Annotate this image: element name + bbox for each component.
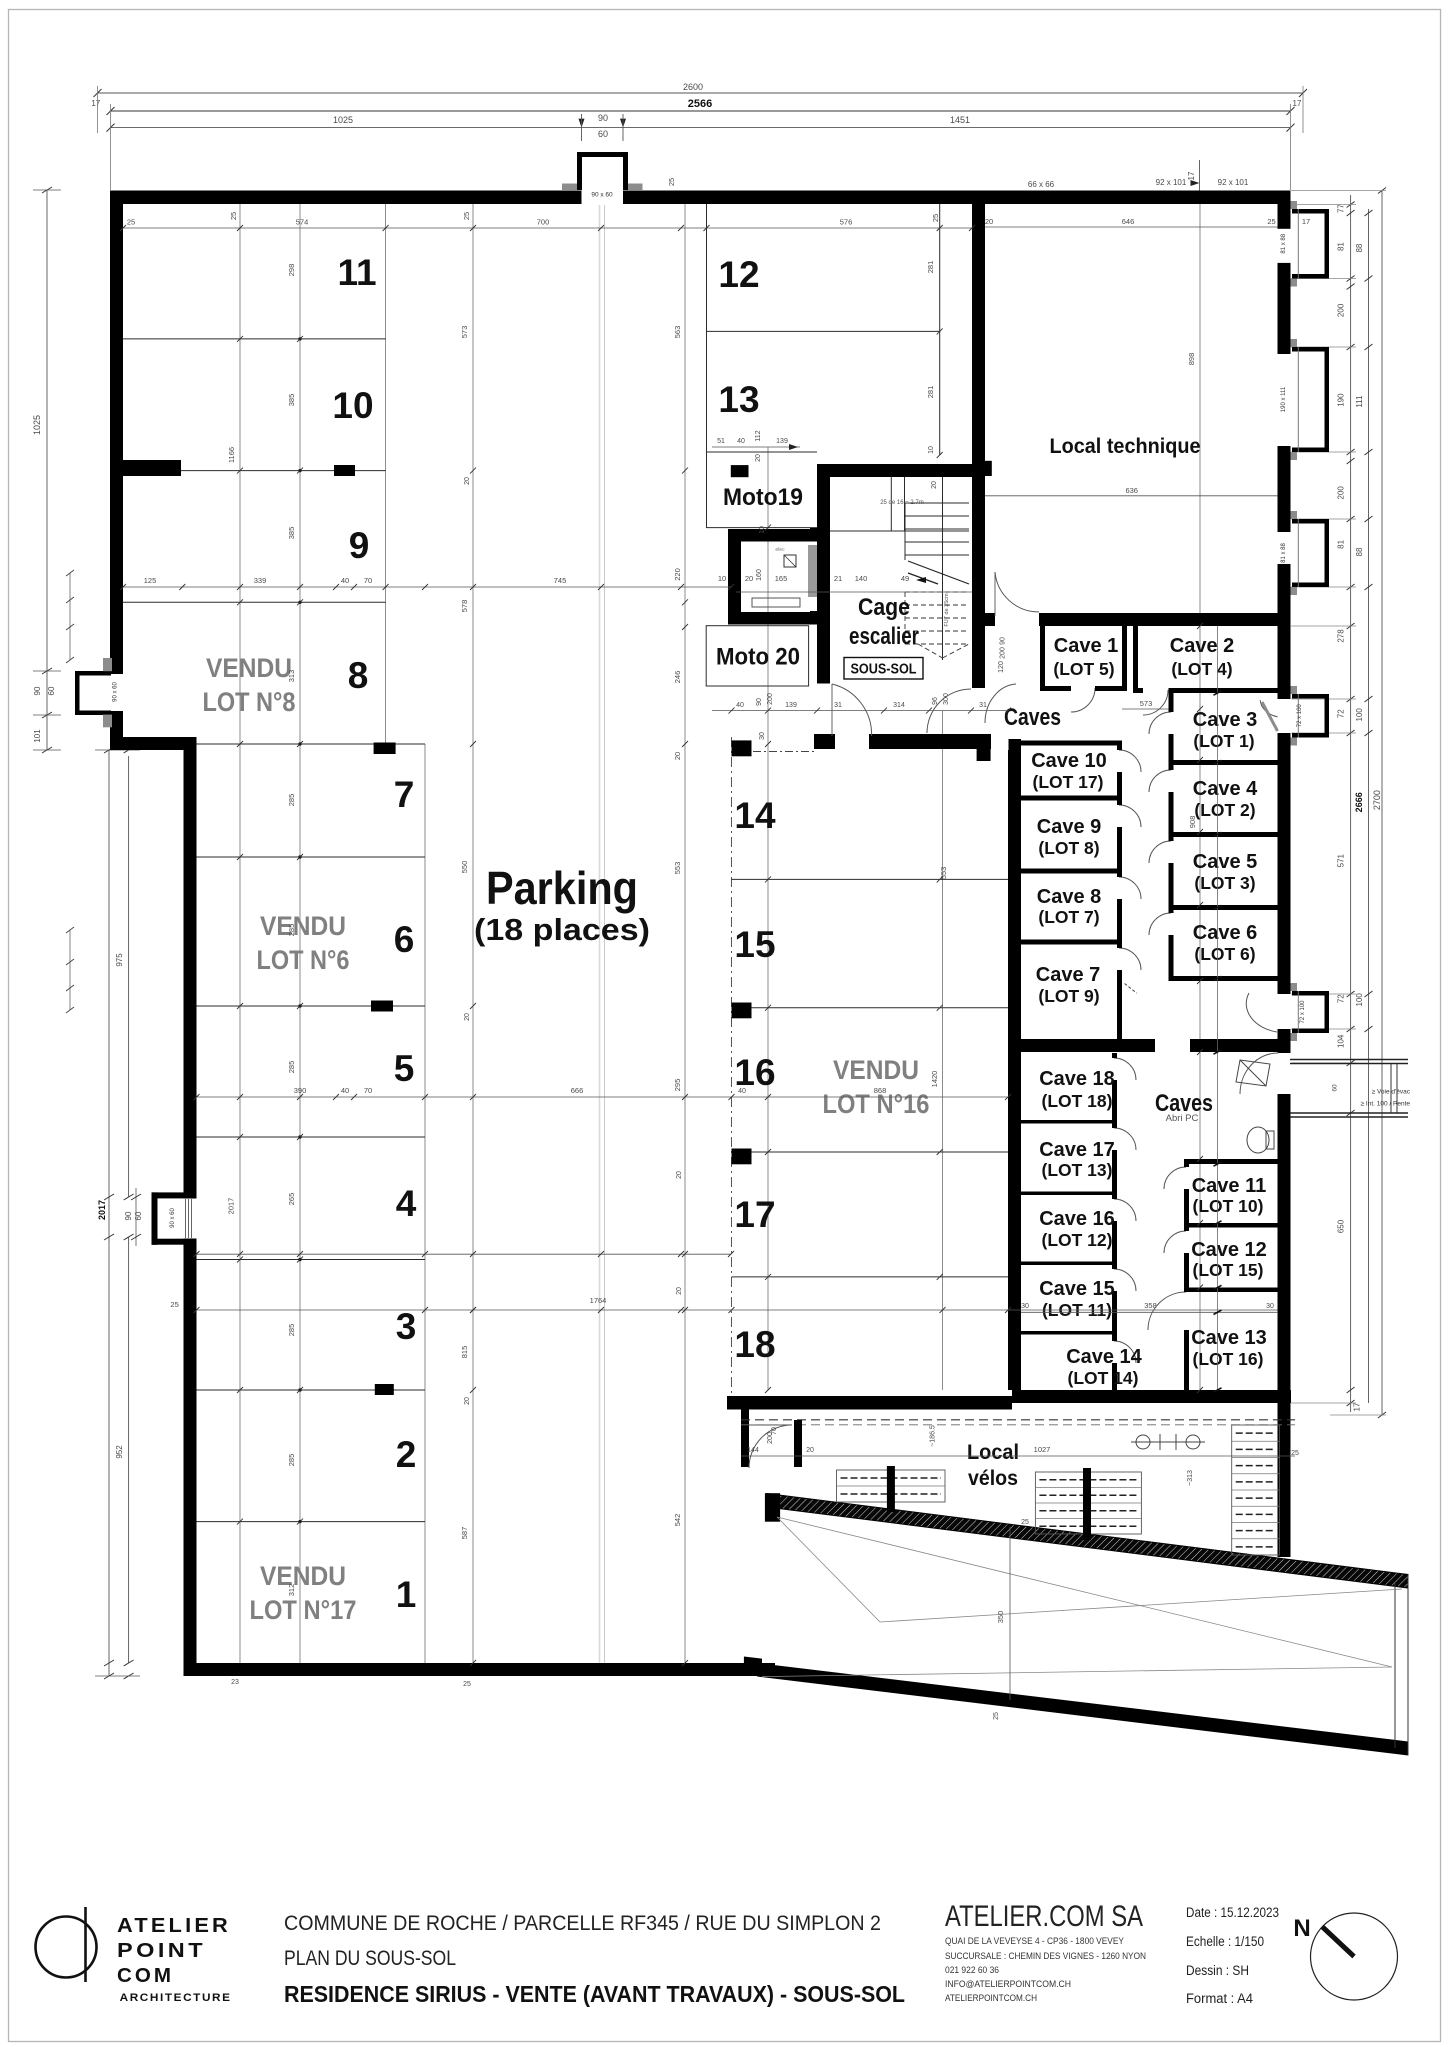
svg-text:66 x 66: 66 x 66 xyxy=(1028,180,1055,189)
svg-text:2017: 2017 xyxy=(227,1198,236,1215)
svg-text:17: 17 xyxy=(734,1194,775,1235)
svg-text:2700: 2700 xyxy=(1372,790,1382,810)
svg-text:88: 88 xyxy=(1355,243,1364,252)
svg-text:ARCHITECTURE: ARCHITECTURE xyxy=(120,1992,232,2004)
svg-text:Local technique: Local technique xyxy=(1050,435,1201,458)
svg-text:385: 385 xyxy=(287,394,296,407)
svg-text:77: 77 xyxy=(1337,204,1346,213)
svg-text:60: 60 xyxy=(47,686,56,695)
svg-text:14: 14 xyxy=(734,795,776,836)
svg-text:100: 100 xyxy=(1355,993,1364,1007)
svg-text:20: 20 xyxy=(464,1013,471,1021)
svg-text:(LOT 4): (LOT 4) xyxy=(1171,659,1232,679)
svg-text:(LOT 3): (LOT 3) xyxy=(1194,873,1255,893)
svg-text:574: 574 xyxy=(296,218,309,227)
svg-text:190 x 111: 190 x 111 xyxy=(1281,386,1287,412)
svg-text:2017: 2017 xyxy=(97,1200,107,1220)
svg-text:ATELIER: ATELIER xyxy=(117,1914,231,1937)
svg-text:339: 339 xyxy=(254,576,267,585)
svg-text:20: 20 xyxy=(464,1397,471,1405)
svg-text:25: 25 xyxy=(1291,1450,1299,1457)
svg-text:elec: elec xyxy=(775,547,785,553)
svg-text:RESIDENCE SIRIUS - VENTE (AVAN: RESIDENCE SIRIUS - VENTE (AVANT TRAVAUX)… xyxy=(284,1981,905,2007)
svg-text:700: 700 xyxy=(537,218,550,227)
svg-text:60: 60 xyxy=(134,1211,143,1220)
svg-text:Cage: Cage xyxy=(858,594,910,621)
svg-text:160: 160 xyxy=(756,569,763,581)
svg-text:(LOT 12): (LOT 12) xyxy=(1042,1230,1113,1250)
svg-text:40: 40 xyxy=(737,438,745,445)
svg-text:Date : 15.12.2023: Date : 15.12.2023 xyxy=(1186,1905,1279,1920)
svg-text:SOUS-SOL: SOUS-SOL xyxy=(851,662,917,678)
svg-text:51: 51 xyxy=(717,438,725,445)
svg-text:11: 11 xyxy=(337,252,376,293)
svg-text:2666: 2666 xyxy=(1354,792,1364,812)
svg-text:815: 815 xyxy=(460,1346,469,1359)
svg-text:40: 40 xyxy=(341,576,349,585)
svg-text:≥ Voie d'évac: ≥ Voie d'évac xyxy=(1372,1089,1411,1096)
svg-text:200: 200 xyxy=(1337,486,1346,500)
svg-text:Cave 7: Cave 7 xyxy=(1036,964,1101,986)
svg-text:Dessin : SH: Dessin : SH xyxy=(1186,1963,1249,1978)
svg-text:1764: 1764 xyxy=(590,1296,607,1305)
svg-text:90: 90 xyxy=(124,1211,133,1220)
svg-text:Cave 13: Cave 13 xyxy=(1191,1327,1267,1349)
svg-text:LOT N°6: LOT N°6 xyxy=(257,945,350,975)
svg-text:25: 25 xyxy=(229,212,238,220)
svg-text:542: 542 xyxy=(673,1514,682,1527)
svg-text:25: 25 xyxy=(1267,217,1275,226)
svg-text:SUCCURSALE : CHEMIN DES VIGNES: SUCCURSALE : CHEMIN DES VIGNES - 1260 NY… xyxy=(945,1951,1146,1962)
svg-text:N: N xyxy=(1293,1915,1310,1942)
svg-text:550: 550 xyxy=(460,861,469,874)
svg-text:Cave 15: Cave 15 xyxy=(1039,1278,1115,1300)
svg-text:70: 70 xyxy=(771,1427,778,1435)
svg-text:Cave 8: Cave 8 xyxy=(1037,886,1102,908)
svg-text:Cave 17: Cave 17 xyxy=(1039,1139,1115,1161)
svg-text:20: 20 xyxy=(931,481,938,489)
svg-text:81 x 88: 81 x 88 xyxy=(1281,233,1287,253)
svg-text:1027: 1027 xyxy=(1034,1445,1051,1454)
svg-text:312: 312 xyxy=(287,1584,296,1597)
svg-text:553: 553 xyxy=(673,862,682,875)
svg-text:(18 places): (18 places) xyxy=(474,912,650,947)
svg-text:908: 908 xyxy=(1188,816,1197,829)
svg-text:8: 8 xyxy=(348,655,369,696)
svg-text:60: 60 xyxy=(1332,1084,1339,1092)
svg-text:(LOT 18): (LOT 18) xyxy=(1042,1091,1113,1111)
svg-text:72 x 100: 72 x 100 xyxy=(1300,1000,1306,1024)
svg-text:12: 12 xyxy=(718,254,759,295)
svg-text:25: 25 xyxy=(170,1300,178,1309)
svg-text:QUAI DE LA VEVEYSE 4 - CP36 -: QUAI DE LA VEVEYSE 4 - CP36 - 1800 VEVEY xyxy=(945,1936,1125,1947)
svg-text:15: 15 xyxy=(734,924,775,965)
svg-text:2566: 2566 xyxy=(688,98,712,110)
svg-text:ATELIERPOINTCOM.CH: ATELIERPOINTCOM.CH xyxy=(945,1993,1037,2004)
svg-text:25: 25 xyxy=(667,178,676,186)
svg-text:(LOT 10): (LOT 10) xyxy=(1193,1196,1264,1216)
svg-text:92 x 101: 92 x 101 xyxy=(1156,178,1187,187)
svg-text:576: 576 xyxy=(840,218,853,227)
svg-text:(LOT 1): (LOT 1) xyxy=(1193,731,1254,751)
svg-text:10: 10 xyxy=(928,446,935,454)
svg-text:(LOT 5): (LOT 5) xyxy=(1053,659,1114,679)
svg-text:650: 650 xyxy=(1337,1219,1346,1233)
svg-text:70: 70 xyxy=(364,576,372,585)
svg-text:9: 9 xyxy=(349,525,370,566)
svg-text:Moto 20: Moto 20 xyxy=(716,644,800,671)
svg-text:Cave 4: Cave 4 xyxy=(1193,778,1258,800)
svg-text:390: 390 xyxy=(294,1086,307,1095)
svg-text:10: 10 xyxy=(332,385,373,426)
svg-text:587: 587 xyxy=(460,1527,469,1540)
svg-text:Format : A4: Format : A4 xyxy=(1186,1991,1253,2006)
svg-text:VENDU: VENDU xyxy=(833,1055,919,1085)
svg-text:INFO@ATELIERPOINTCOM.CH: INFO@ATELIERPOINTCOM.CH xyxy=(945,1979,1071,1990)
svg-text:6: 6 xyxy=(394,919,415,960)
svg-text:20: 20 xyxy=(806,1447,814,1454)
svg-text:220: 220 xyxy=(673,568,682,581)
svg-text:72: 72 xyxy=(1337,994,1346,1003)
svg-text:25: 25 xyxy=(463,1681,471,1688)
svg-text:Echelle : 1/150: Echelle : 1/150 xyxy=(1186,1934,1264,1949)
svg-text:20: 20 xyxy=(676,1171,683,1179)
svg-text:139: 139 xyxy=(785,702,797,709)
svg-text:40: 40 xyxy=(341,1086,349,1095)
svg-text:(LOT 15): (LOT 15) xyxy=(1193,1260,1264,1280)
svg-text:190: 190 xyxy=(1337,393,1346,407)
svg-text:90: 90 xyxy=(598,113,608,123)
svg-text:72: 72 xyxy=(1337,709,1346,718)
svg-text:Cave 14: Cave 14 xyxy=(1066,1346,1142,1368)
svg-text:30: 30 xyxy=(759,732,766,740)
svg-text:200: 200 xyxy=(1337,303,1346,317)
svg-text:745: 745 xyxy=(554,576,567,585)
svg-text:17: 17 xyxy=(1187,171,1196,180)
svg-text:101: 101 xyxy=(33,729,42,743)
svg-text:88: 88 xyxy=(1355,547,1364,556)
svg-text:13: 13 xyxy=(718,379,759,420)
svg-text:72 x 100: 72 x 100 xyxy=(1297,704,1303,728)
svg-text:Cave 5: Cave 5 xyxy=(1193,851,1258,873)
svg-text:VENDU: VENDU xyxy=(206,653,292,683)
svg-text:VENDU: VENDU xyxy=(260,1561,346,1591)
svg-text:Cave 18: Cave 18 xyxy=(1039,1068,1115,1090)
svg-text:Abri PC: Abri PC xyxy=(1166,1113,1199,1124)
svg-text:96: 96 xyxy=(932,697,939,705)
svg-text:17: 17 xyxy=(1293,99,1302,108)
svg-text:20: 20 xyxy=(755,454,762,462)
svg-text:573: 573 xyxy=(460,326,469,339)
svg-text:285: 285 xyxy=(287,1324,296,1337)
svg-text:17: 17 xyxy=(1302,217,1310,226)
svg-text:escalier: escalier xyxy=(849,623,919,650)
svg-text:868: 868 xyxy=(874,1086,887,1095)
svg-text:25: 25 xyxy=(127,218,135,227)
svg-text:(LOT 13): (LOT 13) xyxy=(1042,1160,1113,1180)
svg-text:25: 25 xyxy=(1021,1519,1029,1526)
svg-text:~186.5: ~186.5 xyxy=(930,1425,937,1447)
svg-text:Cave 6: Cave 6 xyxy=(1193,922,1258,944)
svg-text:10: 10 xyxy=(718,574,726,583)
svg-text:Cave 9: Cave 9 xyxy=(1037,816,1102,838)
svg-text:(LOT 9): (LOT 9) xyxy=(1038,986,1099,1006)
svg-text:Cave 1: Cave 1 xyxy=(1054,635,1119,657)
svg-text:ATELIER.COM SA: ATELIER.COM SA xyxy=(945,1900,1143,1933)
svg-text:385: 385 xyxy=(287,527,296,540)
svg-text:COMMUNE DE ROCHE / PARCELLE RF: COMMUNE DE ROCHE / PARCELLE RF345 / RUE … xyxy=(284,1911,881,1935)
svg-text:(LOT 16): (LOT 16) xyxy=(1193,1349,1264,1369)
svg-text:200: 200 xyxy=(767,693,774,705)
svg-text:5: 5 xyxy=(394,1048,415,1089)
svg-text:265: 265 xyxy=(287,1193,296,1206)
svg-text:Cave 10: Cave 10 xyxy=(1031,750,1107,772)
svg-text:100: 100 xyxy=(1355,708,1364,722)
svg-text:139: 139 xyxy=(776,438,788,445)
svg-text:VENDU: VENDU xyxy=(260,911,346,941)
svg-text:358: 358 xyxy=(1144,1301,1157,1310)
svg-text:666: 666 xyxy=(571,1086,584,1095)
svg-text:1025: 1025 xyxy=(333,115,353,125)
svg-text:~313: ~313 xyxy=(1187,1470,1194,1486)
svg-text:Cave 16: Cave 16 xyxy=(1039,1208,1115,1230)
svg-text:200: 200 xyxy=(1000,647,1007,659)
svg-text:(LOT 14): (LOT 14) xyxy=(1068,1368,1139,1388)
svg-text:281: 281 xyxy=(926,261,935,274)
svg-text:021 922 60 36: 021 922 60 36 xyxy=(945,1965,999,1976)
svg-text:2600: 2600 xyxy=(683,82,703,92)
svg-text:20: 20 xyxy=(985,217,993,226)
svg-text:25 de 16 = 2.7m: 25 de 16 = 2.7m xyxy=(880,500,924,506)
svg-text:20: 20 xyxy=(676,1287,683,1295)
svg-text:1420: 1420 xyxy=(930,1071,939,1088)
svg-text:Parking: Parking xyxy=(486,862,638,914)
svg-text:285: 285 xyxy=(287,794,296,807)
svg-text:140: 140 xyxy=(855,574,868,583)
svg-text:2: 2 xyxy=(396,1434,417,1475)
svg-text:Cave 12: Cave 12 xyxy=(1191,1239,1267,1261)
svg-text:278: 278 xyxy=(1337,629,1346,643)
svg-text:20: 20 xyxy=(745,574,753,583)
svg-text:(LOT 8): (LOT 8) xyxy=(1038,838,1099,858)
svg-text:Cave 11: Cave 11 xyxy=(1192,1175,1267,1197)
svg-text:281: 281 xyxy=(926,386,935,399)
svg-text:81 x 88: 81 x 88 xyxy=(1281,542,1287,562)
svg-text:21: 21 xyxy=(834,574,842,583)
svg-text:18: 18 xyxy=(734,1324,775,1365)
svg-text:25: 25 xyxy=(931,214,940,222)
svg-text:10: 10 xyxy=(759,526,766,534)
svg-text:Cave 3: Cave 3 xyxy=(1193,709,1258,731)
svg-text:4: 4 xyxy=(396,1183,417,1224)
svg-text:285: 285 xyxy=(287,1061,296,1074)
svg-text:Moto19: Moto19 xyxy=(723,484,803,511)
svg-text:1: 1 xyxy=(396,1574,417,1615)
svg-text:573: 573 xyxy=(1140,699,1153,708)
svg-text:20: 20 xyxy=(464,477,471,485)
svg-text:(LOT 7): (LOT 7) xyxy=(1038,907,1099,927)
svg-text:112: 112 xyxy=(755,430,762,441)
svg-text:81: 81 xyxy=(1337,539,1346,548)
svg-text:90 x 60: 90 x 60 xyxy=(591,192,613,199)
svg-text:578: 578 xyxy=(460,600,469,613)
svg-text:Caves: Caves xyxy=(1004,704,1061,731)
svg-text:563: 563 xyxy=(673,326,682,339)
svg-text:90 x 60: 90 x 60 xyxy=(170,1207,176,1227)
svg-text:FUT de 25cm: FUT de 25cm xyxy=(944,593,950,627)
svg-text:70: 70 xyxy=(364,1086,372,1095)
svg-text:20: 20 xyxy=(673,752,682,760)
svg-text:144: 144 xyxy=(747,1447,759,1454)
svg-text:17: 17 xyxy=(1353,1402,1362,1411)
svg-text:30: 30 xyxy=(1266,1303,1274,1310)
svg-text:246: 246 xyxy=(673,671,682,684)
svg-text:Local: Local xyxy=(967,1441,1019,1464)
svg-text:975: 975 xyxy=(115,953,124,967)
svg-text:90: 90 xyxy=(756,698,763,706)
svg-text:Cave 2: Cave 2 xyxy=(1170,635,1235,657)
svg-text:1451: 1451 xyxy=(950,115,970,125)
svg-text:553: 553 xyxy=(939,867,948,880)
svg-text:898: 898 xyxy=(1187,353,1196,366)
svg-text:1025: 1025 xyxy=(32,415,42,435)
svg-text:16: 16 xyxy=(734,1052,775,1093)
svg-text:300: 300 xyxy=(943,693,950,705)
svg-text:952: 952 xyxy=(115,1445,124,1459)
svg-text:90: 90 xyxy=(1000,637,1007,645)
svg-text:POINT: POINT xyxy=(117,1939,206,1962)
svg-text:125: 125 xyxy=(144,576,157,585)
svg-text:81: 81 xyxy=(1337,242,1346,251)
svg-text:313: 313 xyxy=(287,670,296,683)
svg-text:3: 3 xyxy=(396,1306,417,1347)
svg-text:30: 30 xyxy=(1021,1303,1029,1310)
svg-text:92 x 101: 92 x 101 xyxy=(1218,178,1249,187)
svg-text:40: 40 xyxy=(738,1088,746,1095)
svg-text:vélos: vélos xyxy=(968,1467,1018,1490)
svg-text:90: 90 xyxy=(33,686,42,695)
svg-text:165: 165 xyxy=(775,574,788,583)
svg-text:571: 571 xyxy=(1337,853,1346,867)
svg-text:350: 350 xyxy=(996,1611,1005,1624)
svg-text:298: 298 xyxy=(287,264,296,277)
svg-text:1166: 1166 xyxy=(227,447,236,463)
svg-text:111: 111 xyxy=(1355,395,1364,408)
svg-text:17: 17 xyxy=(91,99,100,108)
svg-text:COM: COM xyxy=(117,1964,174,1987)
svg-text:49: 49 xyxy=(901,574,909,583)
svg-text:25: 25 xyxy=(462,212,471,220)
svg-text:636: 636 xyxy=(1125,486,1138,495)
svg-text:646: 646 xyxy=(1122,217,1135,226)
svg-text:≥ Int. 100 / Pente: ≥ Int. 100 / Pente xyxy=(1361,1101,1411,1108)
svg-text:285: 285 xyxy=(287,1454,296,1467)
svg-text:23: 23 xyxy=(231,1679,239,1686)
svg-text:LOT N°8: LOT N°8 xyxy=(203,687,296,717)
svg-text:(LOT 6): (LOT 6) xyxy=(1194,944,1255,964)
svg-text:31: 31 xyxy=(979,702,987,709)
svg-text:60: 60 xyxy=(598,129,608,139)
svg-text:285: 285 xyxy=(287,924,296,937)
svg-text:PLAN DU SOUS-SOL: PLAN DU SOUS-SOL xyxy=(284,1946,456,1970)
svg-text:120: 120 xyxy=(998,661,1005,673)
svg-text:(LOT 2): (LOT 2) xyxy=(1194,800,1255,820)
svg-text:90 x 60: 90 x 60 xyxy=(113,681,119,701)
svg-text:104: 104 xyxy=(1337,1034,1346,1048)
svg-text:40: 40 xyxy=(736,702,744,709)
svg-text:(LOT 17): (LOT 17) xyxy=(1033,772,1104,792)
svg-text:25: 25 xyxy=(993,1712,1000,1720)
svg-text:LOT N°17: LOT N°17 xyxy=(250,1595,357,1625)
svg-text:295: 295 xyxy=(673,1079,682,1092)
svg-text:314: 314 xyxy=(893,702,905,709)
svg-text:7: 7 xyxy=(394,774,415,815)
svg-text:31: 31 xyxy=(834,702,842,709)
